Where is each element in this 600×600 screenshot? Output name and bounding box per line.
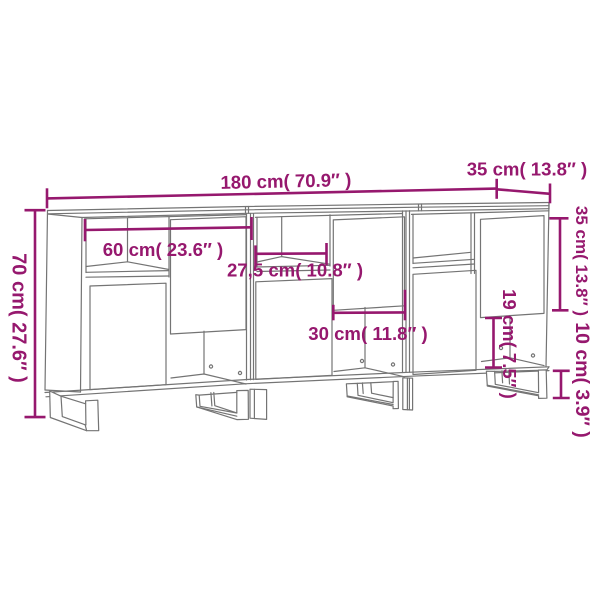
- svg-text:70 cm( 27.6″ ): 70 cm( 27.6″ ): [8, 253, 30, 383]
- svg-text:19 cm( 7.5″ ): 19 cm( 7.5″ ): [499, 289, 520, 399]
- svg-text:10 cm( 3.9″ ): 10 cm( 3.9″ ): [571, 322, 593, 438]
- svg-text:35 cm( 13.8″ ): 35 cm( 13.8″ ): [572, 206, 591, 316]
- svg-text:30 cm( 11.8″ ): 30 cm( 11.8″ ): [308, 323, 428, 344]
- svg-text:60 cm( 23.6″ ): 60 cm( 23.6″ ): [103, 239, 224, 260]
- svg-text:27,5 cm( 10.8″ ): 27,5 cm( 10.8″ ): [227, 260, 363, 281]
- svg-text:180 cm( 70.9″ ): 180 cm( 70.9″ ): [220, 169, 351, 193]
- svg-text:35 cm( 13.8″ ): 35 cm( 13.8″ ): [467, 159, 588, 180]
